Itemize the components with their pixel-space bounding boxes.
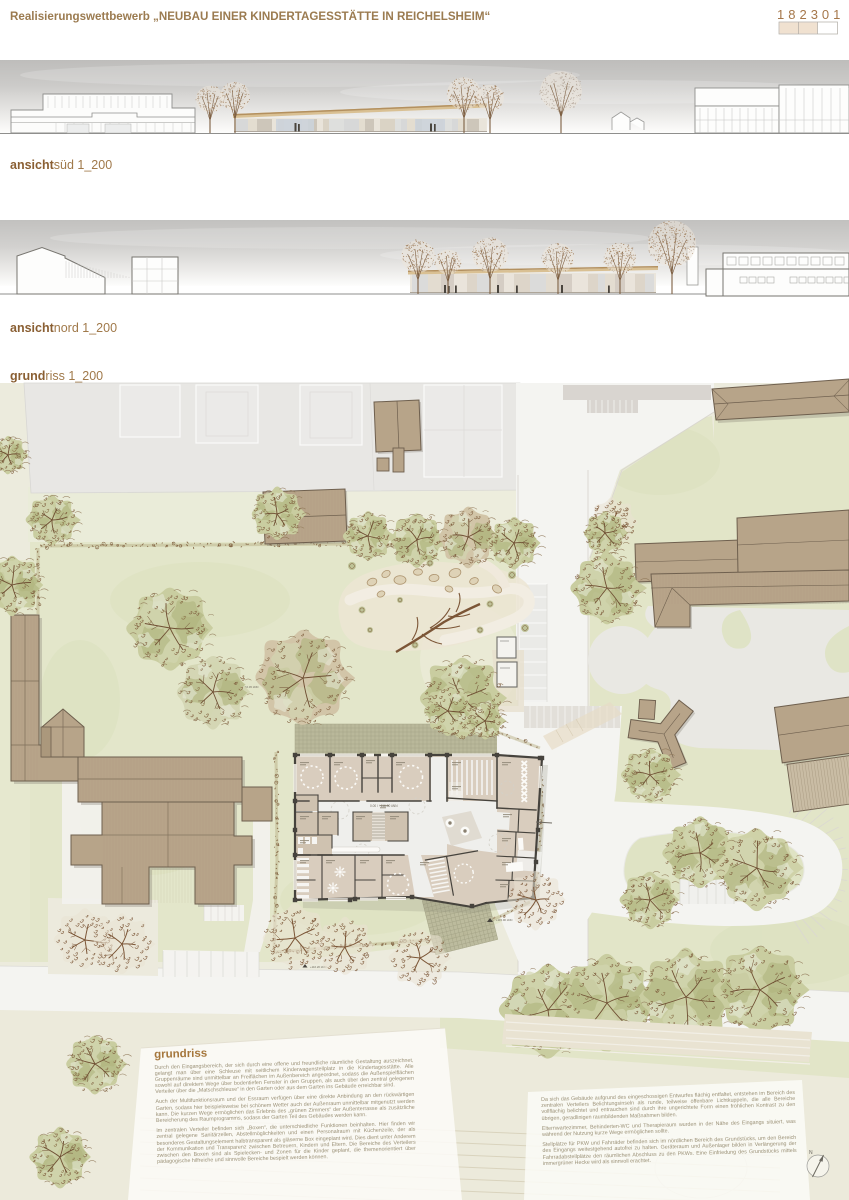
svg-text:N: N xyxy=(809,1150,813,1156)
svg-text:ansichtnord 1_200: ansichtnord 1_200 xyxy=(10,321,117,335)
svg-text:+115.90 üNN: +115.90 üNN xyxy=(496,918,512,922)
svg-text:0.00 / +116.90 üNN: 0.00 / +116.90 üNN xyxy=(370,804,398,808)
svg-text:grundriss 1_200: grundriss 1_200 xyxy=(10,369,103,383)
svg-text:182301: 182301 xyxy=(777,7,844,22)
svg-text:Realisierungswettbewerb „NEUBA: Realisierungswettbewerb „NEUBAU EINER KI… xyxy=(10,10,490,23)
svg-text:ansichtsüd 1_200: ansichtsüd 1_200 xyxy=(10,158,112,172)
